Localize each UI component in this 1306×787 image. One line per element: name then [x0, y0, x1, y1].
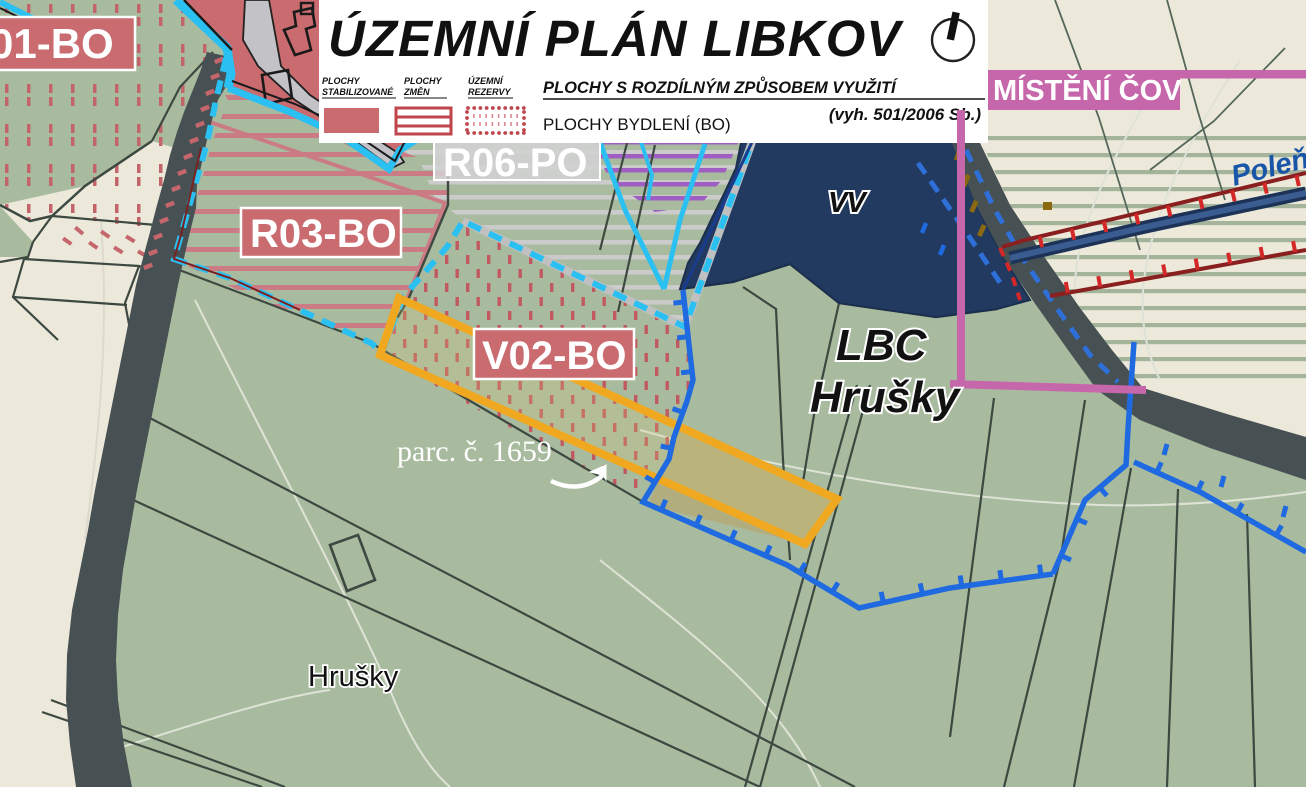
svg-text:ZMĚN: ZMĚN	[403, 86, 430, 97]
svg-text:parc. č. 1659: parc. č. 1659	[397, 435, 552, 468]
svg-text:PLOCHY: PLOCHY	[404, 76, 443, 86]
svg-text:ÚZEMNÍ PLÁN LIBKOV: ÚZEMNÍ PLÁN LIBKOV	[328, 10, 904, 67]
svg-text:PLOCHY S ROZDÍLNÝM ZPŮSOBEM VY: PLOCHY S ROZDÍLNÝM ZPŮSOBEM VYUŽITÍ	[543, 77, 899, 97]
svg-text:ÚZEMNÍ: ÚZEMNÍ	[468, 75, 504, 86]
svg-text:R03-BO: R03-BO	[250, 212, 397, 256]
svg-text:LBC: LBC	[836, 321, 928, 370]
svg-text:V02-BO: V02-BO	[482, 334, 627, 378]
svg-text:REZERVY: REZERVY	[468, 87, 512, 97]
svg-text:MÍSTĚNÍ ČOV: MÍSTĚNÍ ČOV	[993, 73, 1182, 107]
svg-text:Hrušky: Hrušky	[308, 661, 399, 693]
svg-text:VV: VV	[828, 187, 868, 219]
svg-text:STABILIZOVANÉ: STABILIZOVANÉ	[322, 87, 394, 97]
svg-text:PLOCHY BYDLENÍ (BO): PLOCHY BYDLENÍ (BO)	[543, 115, 731, 134]
svg-text:PLOCHY: PLOCHY	[322, 76, 361, 86]
svg-text:R06-PO: R06-PO	[443, 141, 588, 185]
svg-text:Hrušky: Hrušky	[810, 373, 962, 422]
svg-text:V01-BO: V01-BO	[0, 20, 114, 67]
